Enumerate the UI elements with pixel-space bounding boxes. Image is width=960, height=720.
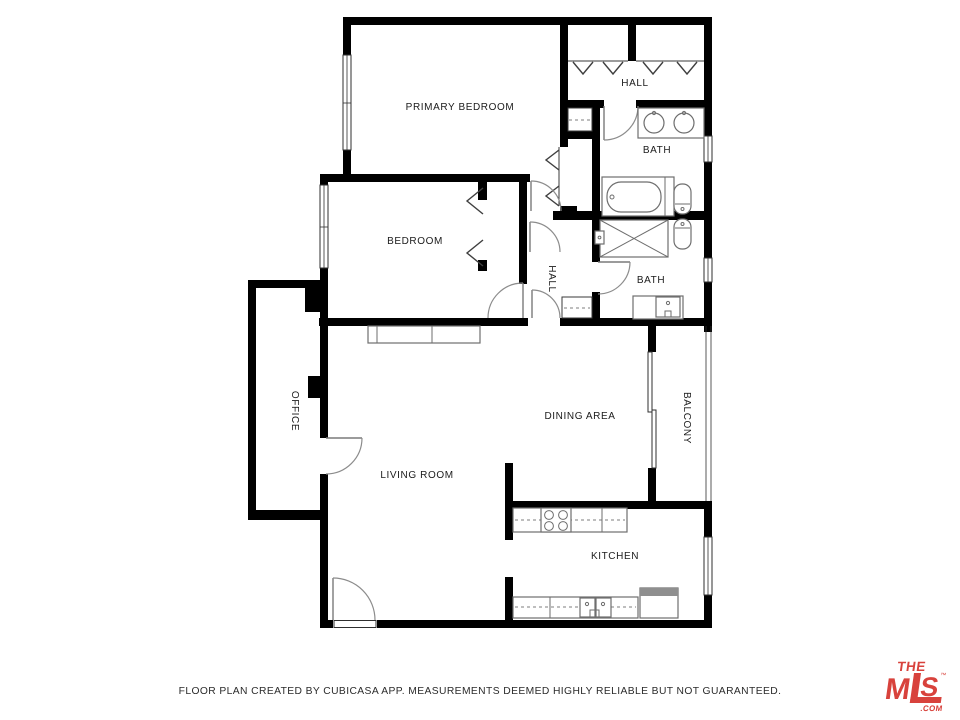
wall <box>704 162 712 258</box>
door-arc <box>604 106 638 140</box>
wall <box>248 510 328 520</box>
room-label-dining-area: DINING AREA <box>544 411 615 422</box>
room-label-hall-top: HALL <box>621 78 648 89</box>
wall <box>592 108 600 212</box>
mls-logo-tm: ™ <box>940 672 947 679</box>
bathtub-basin <box>607 182 661 212</box>
wall <box>319 318 528 326</box>
wall <box>560 17 568 147</box>
room-label-primary-bedroom: PRIMARY BEDROOM <box>406 102 515 113</box>
sliding-door <box>648 352 652 412</box>
wall <box>320 174 530 182</box>
mls-logo-com: .COM <box>920 704 943 713</box>
built-in-counter <box>368 326 480 343</box>
closet-rod-icon <box>546 150 559 170</box>
toilet-icon <box>674 184 691 214</box>
closet-rod-icon <box>643 62 663 74</box>
wall <box>305 281 328 312</box>
wall <box>248 280 256 520</box>
door-arc <box>598 262 630 294</box>
room-label-office: OFFICE <box>289 391 300 431</box>
wall <box>320 474 328 628</box>
wall <box>308 376 328 398</box>
room-label-living-room: LIVING ROOM <box>380 470 453 481</box>
floor-plan-page: PRIMARY BEDROOM HALL BATH BEDROOM HALL B… <box>0 0 960 720</box>
door-arc <box>333 578 375 620</box>
room-label-balcony: BALCONY <box>681 392 692 444</box>
wall <box>343 17 351 55</box>
room-label-bath-top: BATH <box>643 145 671 156</box>
mls-logo-m: M <box>883 673 913 706</box>
kitchen-sink <box>596 598 611 617</box>
door-arc <box>488 283 523 318</box>
wall <box>636 100 712 108</box>
wall <box>628 25 636 61</box>
wall <box>320 174 328 185</box>
refrigerator-top <box>640 588 678 596</box>
room-label-bedroom: BEDROOM <box>387 236 443 247</box>
closet-rod-icon <box>603 62 623 74</box>
wall <box>377 620 712 628</box>
wall <box>519 182 527 284</box>
closet-rod-icon <box>677 62 697 74</box>
wall <box>704 17 712 136</box>
closet-rod-icon <box>573 62 593 74</box>
footer-disclaimer: FLOOR PLAN CREATED BY CUBICASA APP. MEAS… <box>179 686 782 697</box>
door-arc <box>326 438 362 474</box>
floor-plan-drawing: PRIMARY BEDROOM HALL BATH BEDROOM HALL B… <box>0 0 960 720</box>
entry-threshold <box>334 621 376 628</box>
room-label-kitchen: KITCHEN <box>591 551 639 562</box>
wall <box>648 468 656 509</box>
sink-icon <box>656 297 680 317</box>
mls-logo: THE M S ™ .COM <box>882 659 950 713</box>
toilet-icon <box>674 219 691 249</box>
room-label-bath-middle: BATH <box>637 275 665 286</box>
wall <box>505 463 513 540</box>
wall <box>648 318 656 352</box>
wall <box>320 620 333 628</box>
fixtures <box>368 108 704 618</box>
door-arc <box>530 222 560 252</box>
kitchen-sink <box>580 598 595 617</box>
sliding-door <box>652 410 656 468</box>
wall <box>560 100 604 108</box>
wall <box>343 17 712 25</box>
shower-valve <box>595 231 604 244</box>
sink-icon <box>674 113 694 133</box>
door-arc <box>532 290 560 318</box>
room-label-hall-middle: HALL <box>546 265 557 292</box>
sink-icon <box>644 113 664 133</box>
